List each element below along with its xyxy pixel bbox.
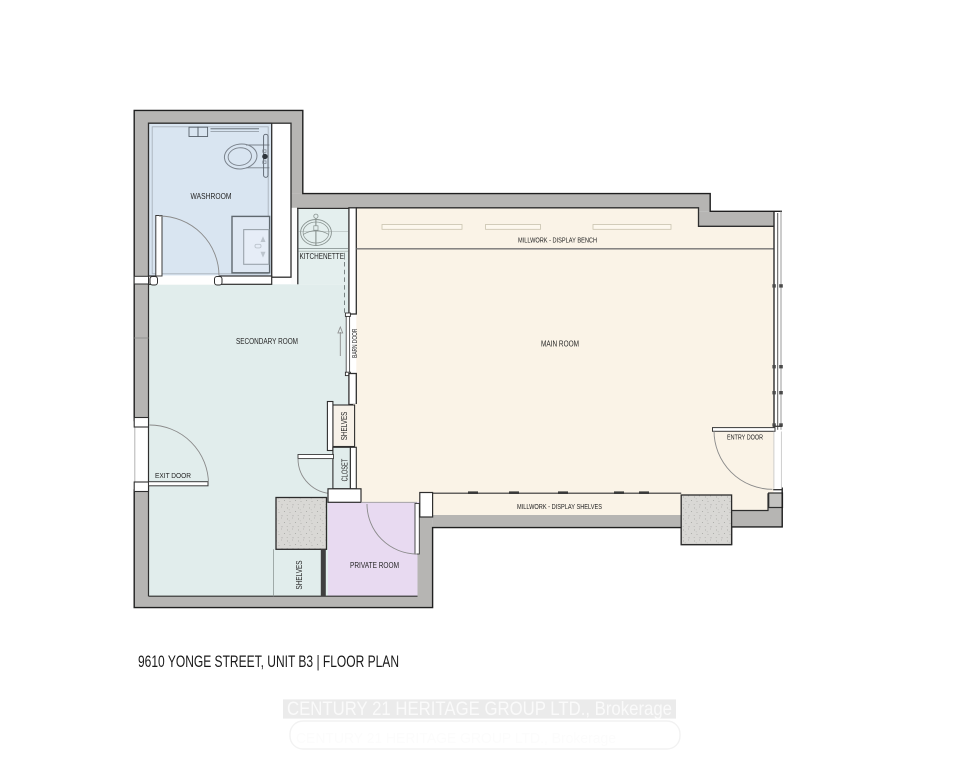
svg-text:EXIT DOOR: EXIT DOOR [155, 471, 191, 480]
svg-text:SECONDARY ROOM: SECONDARY ROOM [236, 337, 298, 346]
svg-text:CENTURY 21 HERITAGE GROUP LTD.: CENTURY 21 HERITAGE GROUP LTD., Brokerag… [296, 730, 616, 747]
svg-text:SHELVES: SHELVES [339, 411, 349, 440]
svg-text:MILLWORK - DISPLAY SHELVES: MILLWORK - DISPLAY SHELVES [517, 504, 602, 511]
svg-text:ENTRY DOOR: ENTRY DOOR [727, 432, 763, 441]
svg-text:PRIVATE ROOM: PRIVATE ROOM [350, 561, 399, 570]
svg-text:MAIN ROOM: MAIN ROOM [541, 340, 579, 349]
svg-text:9610 YONGE STREET, UNIT B3 | F: 9610 YONGE STREET, UNIT B3 | FLOOR PLAN [138, 653, 399, 671]
svg-text:SHELVES: SHELVES [294, 560, 304, 589]
svg-text:MILLWORK - DISPLAY BENCH: MILLWORK - DISPLAY BENCH [518, 238, 597, 245]
svg-text:CLOSET: CLOSET [339, 458, 349, 481]
svg-text:CENTURY 21 HERITAGE GROUP LTD.: CENTURY 21 HERITAGE GROUP LTD., Brokerag… [287, 699, 672, 720]
svg-text:WASHROOM: WASHROOM [191, 192, 232, 201]
svg-text:BARN DOOR: BARN DOOR [352, 329, 359, 358]
svg-text:KITCHENETTE: KITCHENETTE [300, 252, 345, 261]
